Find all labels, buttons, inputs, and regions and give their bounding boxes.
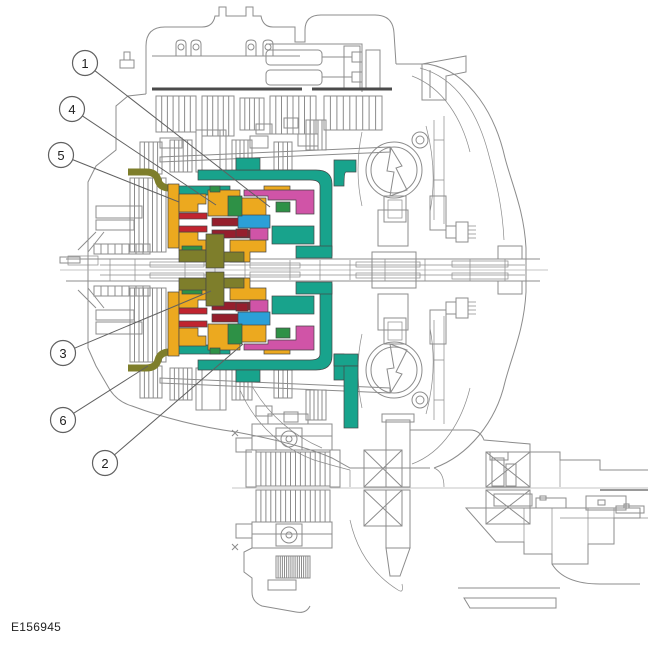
torque-converter	[358, 116, 522, 259]
yellow-drum-left	[168, 184, 179, 248]
callout-6: 6	[51, 366, 149, 433]
callout-number: 4	[68, 102, 75, 117]
callout-leader-line	[114, 344, 243, 455]
case-linework	[60, 7, 648, 612]
callout-layer: 123456	[49, 51, 271, 476]
callout-number: 6	[59, 413, 66, 428]
callout-number: 5	[57, 148, 64, 163]
transmission-cross-section-diagram: 123456	[0, 0, 650, 650]
callout-leader-line	[74, 366, 148, 413]
blue-clutch-pack	[238, 215, 270, 228]
figure-canvas: 123456 E156945	[0, 0, 650, 650]
callout-number: 2	[101, 456, 108, 471]
callout-number: 3	[59, 346, 66, 361]
main-shaft	[60, 256, 548, 281]
final-drive-section	[232, 414, 648, 612]
callout-number: 1	[81, 56, 88, 71]
figure-code: E156945	[11, 620, 61, 634]
